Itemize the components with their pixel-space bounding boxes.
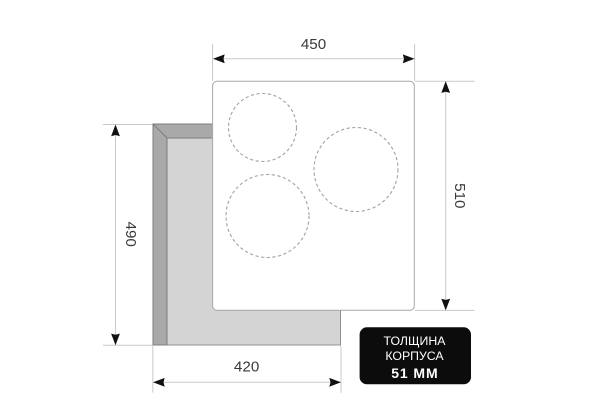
svg-text:510: 510 (451, 183, 468, 208)
svg-text:51 ММ: 51 ММ (391, 365, 438, 381)
svg-text:КОРПУСА: КОРПУСА (385, 349, 444, 363)
svg-text:490: 490 (122, 222, 139, 247)
svg-text:ТОЛЩИНА: ТОЛЩИНА (384, 334, 447, 348)
svg-text:420: 420 (234, 359, 259, 376)
svg-text:450: 450 (301, 36, 326, 53)
